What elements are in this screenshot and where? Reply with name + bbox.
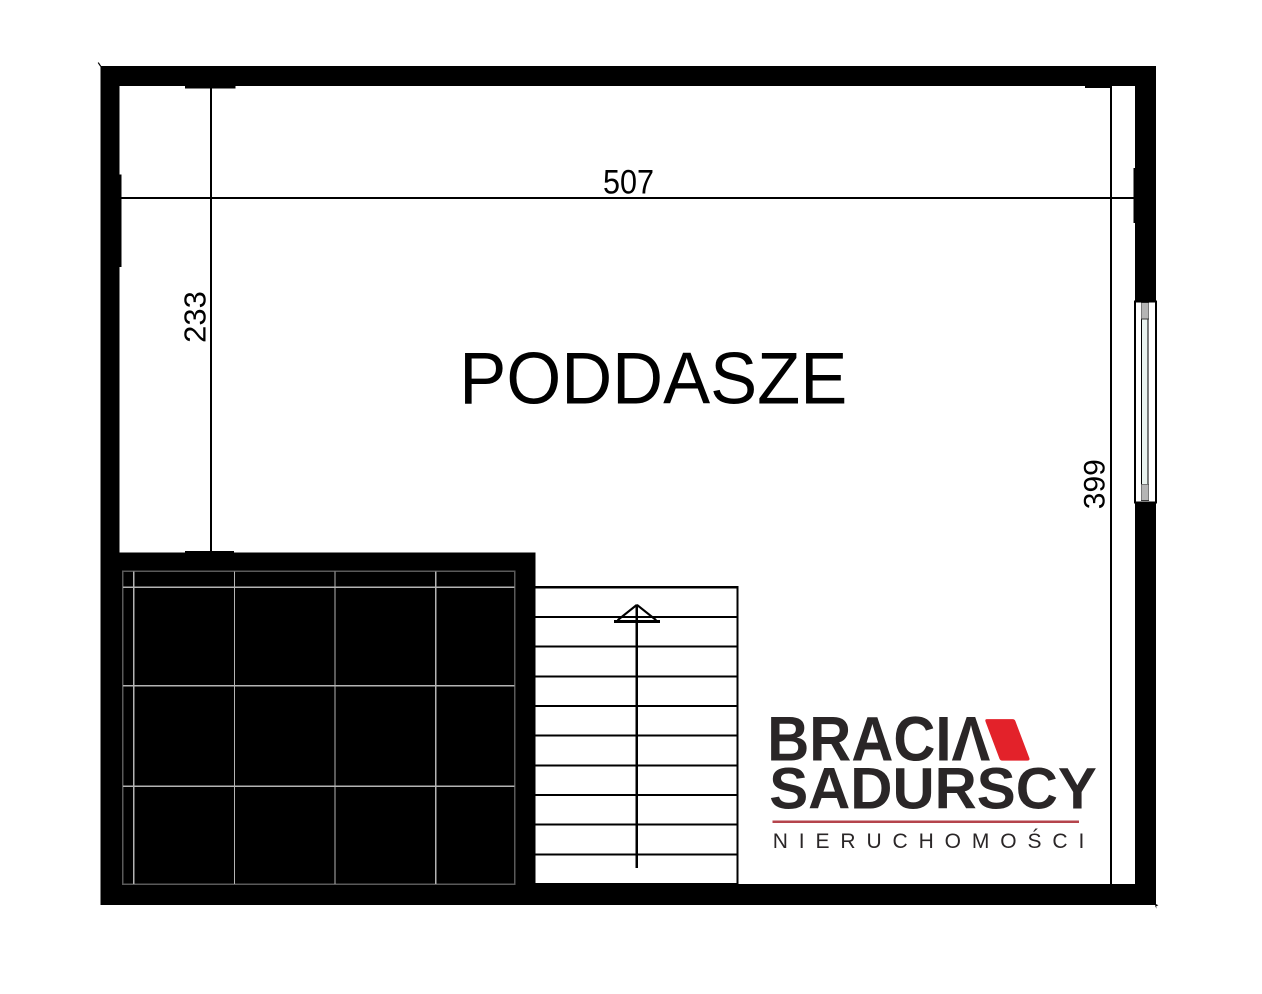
svg-text:NIERUCHOMOŚCI: NIERUCHOMOŚCI — [773, 829, 1096, 853]
svg-text:PODDASZE: PODDASZE — [459, 339, 847, 420]
svg-text:399: 399 — [1079, 459, 1112, 509]
svg-text:233: 233 — [178, 291, 213, 343]
svg-text:507: 507 — [603, 164, 654, 202]
svg-text:SADURSCY: SADURSCY — [769, 757, 1097, 822]
